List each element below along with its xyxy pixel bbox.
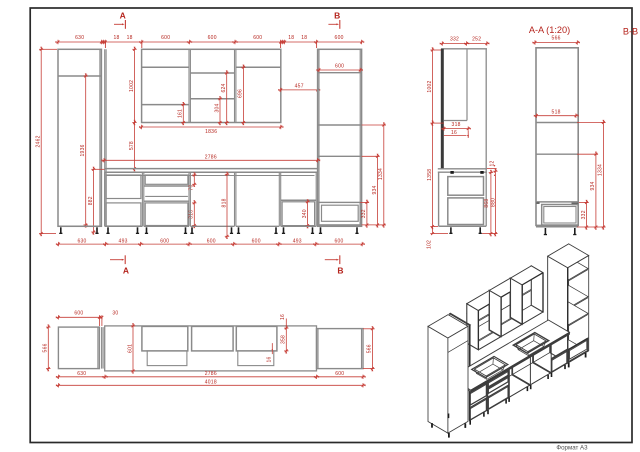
svg-text:102: 102 <box>426 240 432 249</box>
svg-text:1334: 1334 <box>598 164 604 176</box>
svg-text:A: A <box>123 265 129 275</box>
svg-text:358: 358 <box>281 335 287 344</box>
svg-text:493: 493 <box>119 238 128 244</box>
svg-text:B: B <box>337 265 343 275</box>
svg-text:1334: 1334 <box>378 168 384 180</box>
svg-text:252: 252 <box>472 37 481 43</box>
svg-text:1002: 1002 <box>427 80 433 92</box>
svg-text:1936: 1936 <box>80 144 86 156</box>
svg-text:B-B: B-B <box>623 27 638 37</box>
svg-text:B: B <box>334 11 340 21</box>
svg-text:Формат А3: Формат А3 <box>556 445 588 452</box>
svg-text:316: 316 <box>189 210 195 219</box>
svg-text:601: 601 <box>127 344 133 353</box>
svg-text:16: 16 <box>280 314 286 320</box>
svg-text:161: 161 <box>178 109 184 118</box>
svg-text:1002: 1002 <box>129 80 135 92</box>
svg-text:1358: 1358 <box>427 169 433 181</box>
svg-text:882: 882 <box>88 196 94 205</box>
svg-text:600: 600 <box>335 63 344 69</box>
svg-text:600: 600 <box>252 238 261 244</box>
svg-text:630: 630 <box>77 371 86 377</box>
svg-text:624: 624 <box>221 83 227 92</box>
svg-text:2462: 2462 <box>36 135 42 147</box>
svg-text:70: 70 <box>189 184 195 190</box>
svg-text:600: 600 <box>253 35 262 41</box>
svg-text:332: 332 <box>361 209 367 218</box>
svg-text:16: 16 <box>451 130 457 136</box>
svg-text:600: 600 <box>207 238 216 244</box>
svg-text:304: 304 <box>214 103 220 112</box>
svg-text:332: 332 <box>450 37 459 43</box>
svg-text:2786: 2786 <box>205 371 217 377</box>
svg-text:518: 518 <box>552 109 561 115</box>
svg-text:16: 16 <box>267 356 273 362</box>
svg-text:18: 18 <box>127 35 133 41</box>
svg-text:18: 18 <box>301 35 307 41</box>
svg-text:18: 18 <box>113 35 119 41</box>
svg-text:4018: 4018 <box>205 379 217 385</box>
svg-text:600: 600 <box>160 238 169 244</box>
svg-text:600: 600 <box>208 35 217 41</box>
svg-text:1836: 1836 <box>205 129 217 135</box>
svg-text:600: 600 <box>335 371 344 377</box>
svg-text:934: 934 <box>372 185 378 194</box>
svg-text:A-A (1:20): A-A (1:20) <box>529 25 570 35</box>
svg-text:566: 566 <box>43 343 49 352</box>
svg-text:600: 600 <box>335 35 344 41</box>
svg-text:630: 630 <box>75 35 84 41</box>
svg-text:934: 934 <box>590 181 596 190</box>
svg-text:318: 318 <box>452 122 461 128</box>
svg-text:600: 600 <box>74 311 83 317</box>
svg-text:600: 600 <box>161 35 170 41</box>
svg-text:578: 578 <box>129 141 135 150</box>
svg-text:30: 30 <box>112 311 118 317</box>
svg-text:868: 868 <box>484 199 490 208</box>
svg-text:566: 566 <box>367 344 373 353</box>
svg-text:332: 332 <box>581 210 587 219</box>
svg-text:A: A <box>120 11 126 21</box>
svg-text:566: 566 <box>552 36 561 42</box>
svg-text:457: 457 <box>295 84 304 90</box>
svg-text:600: 600 <box>334 238 343 244</box>
svg-text:880: 880 <box>490 198 496 207</box>
svg-text:340: 340 <box>302 209 308 218</box>
svg-text:696: 696 <box>238 89 244 98</box>
svg-text:2786: 2786 <box>205 155 217 161</box>
svg-text:818: 818 <box>221 198 227 207</box>
svg-text:493: 493 <box>293 238 302 244</box>
svg-text:630: 630 <box>77 238 86 244</box>
svg-text:18: 18 <box>288 35 294 41</box>
